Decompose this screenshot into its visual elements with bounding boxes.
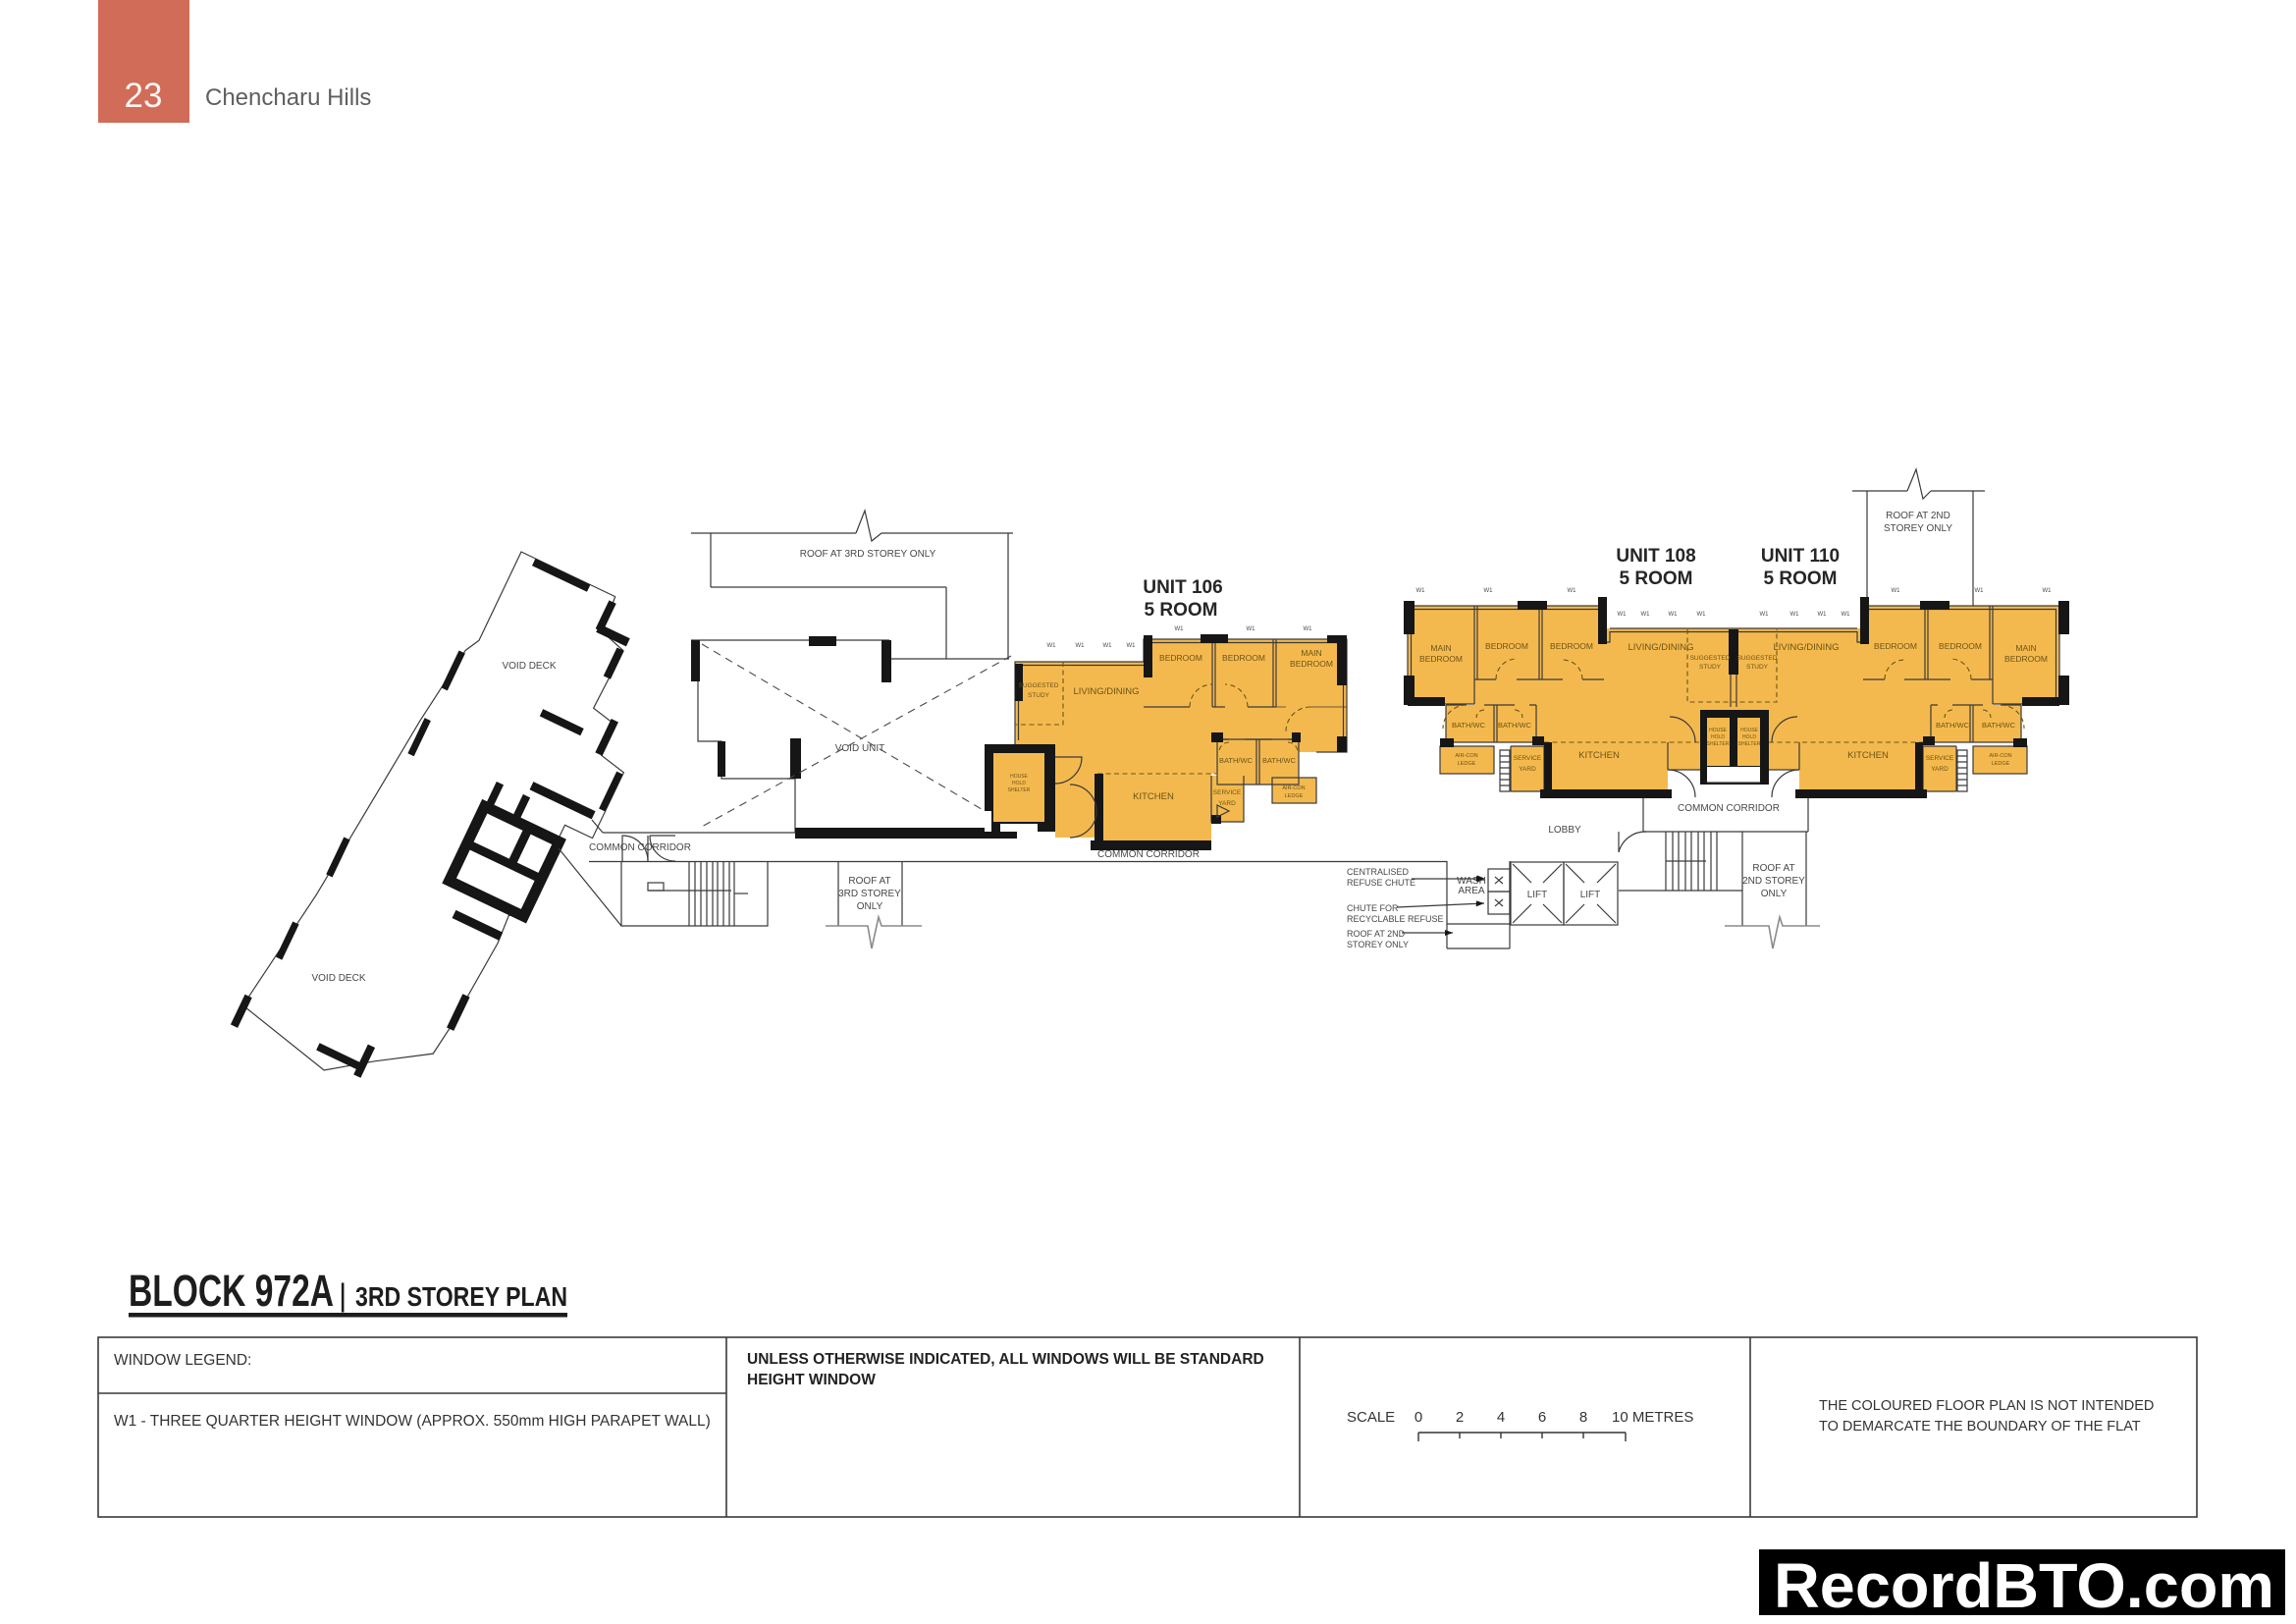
svg-text:BEDROOM: BEDROOM: [2004, 654, 2048, 664]
svg-text:UNLESS OTHERWISE INDICATED, AL: UNLESS OTHERWISE INDICATED, ALL WINDOWS …: [747, 1351, 1264, 1368]
svg-text:STOREY ONLY: STOREY ONLY: [1884, 523, 1952, 534]
svg-text:W1: W1: [1760, 612, 1770, 618]
svg-text:AREA: AREA: [1458, 886, 1485, 896]
svg-text:VOID UNIT: VOID UNIT: [835, 743, 885, 754]
svg-text:RecordBTO.com: RecordBTO.com: [1774, 1550, 2274, 1621]
svg-text:6: 6: [1538, 1409, 1546, 1426]
svg-text:ROOF AT 2ND: ROOF AT 2ND: [1886, 511, 1950, 521]
svg-text:VOID DECK: VOID DECK: [502, 661, 556, 672]
svg-text:CHUTE FOR: CHUTE FOR: [1347, 903, 1399, 913]
svg-text:BATH/WC: BATH/WC: [1982, 721, 2016, 730]
svg-text:ONLY: ONLY: [857, 901, 883, 912]
svg-text:KITCHEN: KITCHEN: [1847, 750, 1889, 761]
svg-text:0: 0: [1415, 1409, 1422, 1426]
svg-text:SUGGESTED: SUGGESTED: [1737, 655, 1778, 662]
svg-text:2: 2: [1456, 1409, 1464, 1426]
svg-text:UNIT 106: UNIT 106: [1143, 577, 1222, 598]
svg-text:LIVING/DINING: LIVING/DINING: [1773, 642, 1839, 653]
svg-text:STUDY: STUDY: [1028, 692, 1050, 699]
svg-text:THE COLOURED FLOOR PLAN IS NOT: THE COLOURED FLOOR PLAN IS NOT INTENDED: [1819, 1398, 2154, 1414]
svg-text:W1: W1: [1790, 612, 1800, 618]
svg-text:BEDROOM: BEDROOM: [1222, 653, 1265, 663]
svg-text:LIFT: LIFT: [1580, 890, 1601, 900]
svg-text:2ND STOREY: 2ND STOREY: [1742, 876, 1805, 887]
svg-text:AIR-CON: AIR-CON: [1455, 753, 1477, 759]
svg-text:W1: W1: [1842, 612, 1851, 618]
svg-text:LIFT: LIFT: [1527, 890, 1548, 900]
svg-text:3RD STOREY PLAN: 3RD STOREY PLAN: [355, 1281, 567, 1312]
svg-text:HOUSE: HOUSE: [1709, 728, 1727, 733]
svg-text:AIR-CON: AIR-CON: [1989, 753, 2011, 759]
svg-text:SHELTER: SHELTER: [1707, 741, 1730, 747]
svg-text:COMMON CORRIDOR: COMMON CORRIDOR: [1678, 803, 1780, 814]
svg-text:LIVING/DINING: LIVING/DINING: [1628, 642, 1693, 653]
svg-text:SERVICE: SERVICE: [1926, 755, 1954, 762]
svg-text:SUGGESTED: SUGGESTED: [1690, 655, 1731, 662]
svg-text:UNIT 108: UNIT 108: [1616, 546, 1695, 567]
svg-text:RECYCLABLE REFUSE: RECYCLABLE REFUSE: [1347, 914, 1444, 924]
svg-text:MAIN: MAIN: [2015, 643, 2036, 653]
svg-text:ROOF AT: ROOF AT: [848, 876, 890, 887]
svg-text:W1: W1: [1103, 643, 1113, 649]
svg-text:HOLD: HOLD: [1742, 734, 1756, 740]
svg-text:CENTRALISED: CENTRALISED: [1347, 867, 1410, 877]
svg-text:REFUSE CHUTE: REFUSE CHUTE: [1347, 878, 1415, 888]
svg-text:WINDOW LEGEND:: WINDOW LEGEND:: [114, 1352, 251, 1369]
svg-text:W1: W1: [1641, 612, 1651, 618]
svg-text:W1: W1: [1669, 612, 1679, 618]
svg-text:|: |: [339, 1277, 347, 1313]
svg-text:W1: W1: [1892, 588, 1901, 594]
svg-text:COMMON CORRIDOR: COMMON CORRIDOR: [589, 842, 691, 853]
svg-text:BEDROOM: BEDROOM: [1485, 641, 1528, 651]
svg-text:W1: W1: [1484, 588, 1494, 594]
svg-text:5 ROOM: 5 ROOM: [1620, 568, 1693, 589]
svg-text:BEDROOM: BEDROOM: [1159, 653, 1202, 663]
svg-text:LIVING/DINING: LIVING/DINING: [1073, 686, 1139, 697]
svg-text:BATH/WC: BATH/WC: [1498, 721, 1532, 730]
svg-text:SERVICE: SERVICE: [1514, 755, 1542, 762]
svg-text:W1 - THREE QUARTER HEIGHT WIND: W1 - THREE QUARTER HEIGHT WINDOW (APPROX…: [114, 1413, 711, 1430]
svg-text:ONLY: ONLY: [1761, 889, 1788, 899]
svg-text:W1: W1: [1975, 588, 1985, 594]
svg-text:BEDROOM: BEDROOM: [1939, 641, 1982, 651]
svg-text:W1: W1: [1697, 612, 1707, 618]
svg-text:W1: W1: [1047, 643, 1057, 649]
svg-text:BEDROOM: BEDROOM: [1874, 641, 1917, 651]
svg-text:KITCHEN: KITCHEN: [1133, 791, 1174, 802]
svg-text:LOBBY: LOBBY: [1548, 825, 1581, 836]
svg-text:SHELTER: SHELTER: [1008, 787, 1031, 793]
svg-text:STUDY: STUDY: [1699, 664, 1722, 671]
svg-text:UNIT 110: UNIT 110: [1761, 546, 1840, 567]
svg-text:COMMON CORRIDOR: COMMON CORRIDOR: [1097, 849, 1200, 860]
svg-text:MAIN: MAIN: [1301, 648, 1321, 658]
svg-text:SCALE: SCALE: [1347, 1409, 1395, 1426]
svg-text:W1: W1: [1304, 626, 1313, 632]
svg-text:HOUSE: HOUSE: [1010, 774, 1028, 780]
svg-text:5 ROOM: 5 ROOM: [1145, 600, 1218, 621]
svg-text:BEDROOM: BEDROOM: [1550, 641, 1593, 651]
svg-text:LEDGE: LEDGE: [1992, 761, 2010, 767]
svg-text:W1: W1: [2043, 588, 2053, 594]
svg-text:HOUSE: HOUSE: [1740, 728, 1758, 733]
svg-text:LEDGE: LEDGE: [1285, 793, 1304, 799]
svg-text:SUGGESTED: SUGGESTED: [1019, 682, 1059, 689]
svg-text:W1: W1: [1127, 643, 1137, 649]
svg-text:HEIGHT WINDOW: HEIGHT WINDOW: [747, 1372, 876, 1388]
svg-text:3RD STOREY: 3RD STOREY: [838, 889, 901, 899]
svg-text:5 ROOM: 5 ROOM: [1764, 568, 1838, 589]
svg-text:BATH/WC: BATH/WC: [1936, 721, 1970, 730]
svg-text:HOLD: HOLD: [1711, 734, 1725, 740]
svg-text:BLOCK 972A: BLOCK 972A: [129, 1266, 334, 1316]
svg-text:STOREY ONLY: STOREY ONLY: [1347, 940, 1409, 949]
svg-text:ROOF AT 3RD STOREY ONLY: ROOF AT 3RD STOREY ONLY: [800, 549, 936, 560]
svg-text:SHELTER: SHELTER: [1738, 741, 1761, 747]
svg-text:HOLD: HOLD: [1012, 781, 1026, 786]
svg-text:23: 23: [125, 77, 163, 115]
svg-text:YARD: YARD: [1218, 800, 1236, 807]
svg-text:Chencharu Hills: Chencharu Hills: [205, 84, 371, 111]
svg-text:W1: W1: [1247, 626, 1256, 632]
svg-text:STUDY: STUDY: [1746, 664, 1769, 671]
svg-text:BATH/WC: BATH/WC: [1262, 756, 1297, 765]
svg-text:ROOF AT 2ND: ROOF AT 2ND: [1347, 929, 1406, 939]
svg-text:VOID DECK: VOID DECK: [311, 973, 365, 984]
svg-text:TO DEMARCATE THE BOUNDARY OF T: TO DEMARCATE THE BOUNDARY OF THE FLAT: [1819, 1419, 2141, 1435]
svg-text:ROOF AT: ROOF AT: [1752, 863, 1794, 874]
svg-text:LEDGE: LEDGE: [1458, 761, 1476, 767]
svg-text:W1: W1: [1076, 643, 1086, 649]
svg-text:8: 8: [1579, 1409, 1587, 1426]
svg-text:W1: W1: [1568, 588, 1577, 594]
svg-text:KITCHEN: KITCHEN: [1578, 750, 1620, 761]
svg-text:BEDROOM: BEDROOM: [1419, 654, 1463, 664]
svg-text:AIR-CON: AIR-CON: [1282, 785, 1305, 791]
svg-text:W1: W1: [1618, 612, 1628, 618]
svg-text:BEDROOM: BEDROOM: [1290, 659, 1333, 669]
svg-text:YARD: YARD: [1931, 766, 1949, 773]
svg-text:4: 4: [1497, 1409, 1505, 1426]
svg-text:W1: W1: [1818, 612, 1828, 618]
svg-text:SERVICE: SERVICE: [1213, 789, 1242, 796]
svg-text:MAIN: MAIN: [1430, 643, 1451, 653]
svg-text:W1: W1: [1175, 626, 1185, 632]
svg-text:BATH/WC: BATH/WC: [1452, 721, 1486, 730]
svg-text:W1: W1: [1416, 588, 1426, 594]
svg-text:10 METRES: 10 METRES: [1612, 1409, 1693, 1426]
svg-text:BATH/WC: BATH/WC: [1219, 756, 1254, 765]
svg-text:YARD: YARD: [1519, 766, 1536, 773]
